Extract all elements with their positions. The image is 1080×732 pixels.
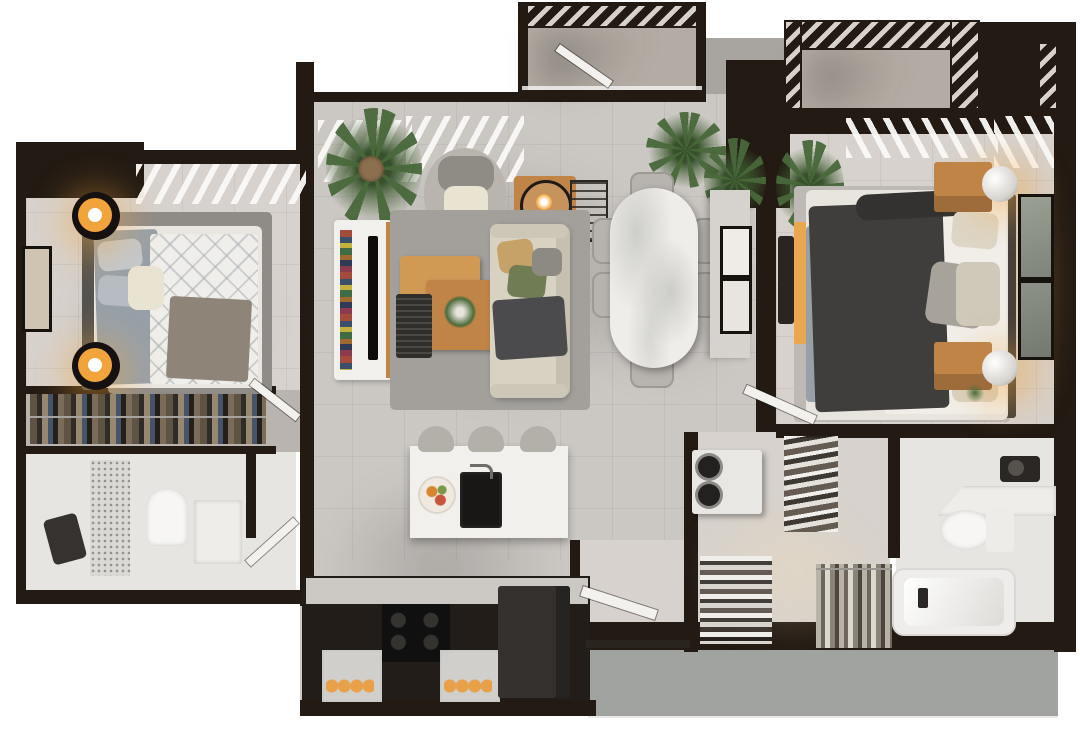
breakfast-plate xyxy=(420,478,454,512)
toilet-right-tank xyxy=(986,508,1014,552)
closet-right-rail xyxy=(816,568,892,570)
doormat-landing xyxy=(588,650,1058,718)
bedroom-right-art-1 xyxy=(1018,194,1054,280)
closet-left-bottom-wall xyxy=(26,446,276,454)
bed-left-pillow-cream xyxy=(128,266,164,310)
orange-lamp-2-bulb xyxy=(88,358,102,372)
console-books xyxy=(340,230,352,370)
closet-right-hanging-clothes xyxy=(816,564,892,648)
shower-glass-screen xyxy=(90,460,130,576)
globe-lamp-bottom xyxy=(982,350,1018,386)
gallery-frame-2 xyxy=(720,278,752,334)
shoe-shelves-upper xyxy=(784,436,838,532)
wall-living-nw-stub xyxy=(296,62,314,164)
balcony-top-pergola xyxy=(528,6,696,26)
pastry-left-buns xyxy=(326,678,374,694)
pastry-case-right xyxy=(440,650,500,702)
bathtub-faucet xyxy=(918,588,928,608)
island-faucet xyxy=(470,464,493,479)
bed-right-pillow-cream xyxy=(956,262,1000,326)
closet-left-hanging-clothes xyxy=(30,394,266,444)
nightstand-plant-sprig xyxy=(966,384,984,402)
closet-left-rail xyxy=(30,416,266,418)
wall-bedroom-left-top xyxy=(138,150,314,164)
wall-left-wing-bottom xyxy=(16,590,306,604)
pastry-right-buns xyxy=(444,678,492,694)
gallery-frame-1 xyxy=(720,226,752,278)
desk-bench-dark xyxy=(778,236,794,324)
sofa-arm-bottom xyxy=(490,384,568,398)
bedroom-left-wall-art xyxy=(22,246,52,332)
banana-plant-pot xyxy=(358,156,384,182)
bedroom-right-art-2 xyxy=(1018,280,1054,360)
orange-lamp-1-bulb xyxy=(88,208,102,222)
floor-plan-render xyxy=(0,0,1080,732)
sofa-pillow-gray xyxy=(532,248,562,276)
refrigerator xyxy=(498,586,570,698)
wall-living-top xyxy=(314,92,522,102)
balcony-top-rail-glass xyxy=(522,86,702,90)
wall-closet-bath-divider xyxy=(888,438,900,558)
balcony-right-pergola-left xyxy=(786,22,800,116)
bed-left-throw xyxy=(166,296,252,382)
wall-faucet-knob xyxy=(1008,460,1024,476)
globe-lamp-top xyxy=(982,166,1018,202)
vanity-left xyxy=(194,500,242,564)
coffee-table-bench xyxy=(396,294,432,358)
island-sink xyxy=(460,472,502,528)
washer-door-1 xyxy=(698,456,720,478)
oven-door xyxy=(388,664,444,682)
balcony-right-pergola-right xyxy=(952,22,978,116)
wall-dining-bedroom-partition xyxy=(756,88,776,432)
sofa-throw xyxy=(492,296,568,361)
wall-left-wing-right xyxy=(300,150,314,606)
wall-left-outer xyxy=(16,142,26,604)
shoe-rack-lower xyxy=(700,556,772,644)
balcony-right-pergola-top xyxy=(798,22,964,48)
wall-kitchen-bottom xyxy=(300,700,596,716)
balcony-top-frame-s xyxy=(518,90,706,102)
wall-bath-left-door-jamb xyxy=(246,452,256,538)
shadow-balcony-top xyxy=(540,34,690,90)
shadow-balcony-right xyxy=(810,52,950,108)
toilet-left-bowl xyxy=(146,488,188,546)
entry-threshold xyxy=(586,640,690,648)
ring-lamp-flame xyxy=(536,194,552,210)
washer-door-2 xyxy=(698,484,720,506)
tv-screen xyxy=(368,236,378,360)
bedroom-left-window-shades xyxy=(136,164,306,204)
coffee-table-plant xyxy=(444,296,476,328)
sofa-arm-top xyxy=(490,224,568,238)
pastry-case-left xyxy=(322,650,382,702)
dining-table xyxy=(610,188,698,368)
toilet-right-bowl xyxy=(940,510,992,550)
